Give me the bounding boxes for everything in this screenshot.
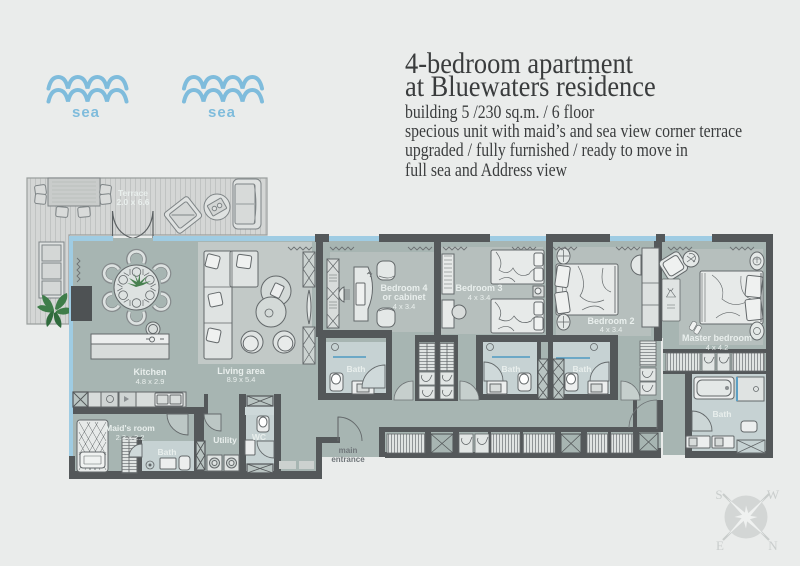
svg-text:or cabinet: or cabinet (382, 292, 425, 302)
svg-text:4 x 3.4: 4 x 3.4 (600, 325, 623, 334)
svg-text:entrance: entrance (331, 455, 365, 464)
svg-text:2.3 x 2.2: 2.3 x 2.2 (116, 433, 145, 442)
svg-text:S: S (715, 487, 722, 502)
svg-text:Maid's room: Maid's room (105, 423, 155, 433)
svg-text:N: N (768, 538, 778, 553)
svg-text:Bath: Bath (502, 364, 521, 374)
svg-text:4 x 4.2: 4 x 4.2 (706, 343, 729, 352)
svg-text:Bath: Bath (713, 409, 732, 419)
svg-text:main: main (339, 446, 358, 455)
svg-text:Utility: Utility (213, 435, 237, 445)
svg-text:4 x 3.4: 4 x 3.4 (468, 293, 491, 302)
svg-text:8.9 x 5.4: 8.9 x 5.4 (227, 375, 256, 384)
svg-text:2.0 x 6.6: 2.0 x 6.6 (116, 197, 149, 207)
svg-text:WC: WC (252, 432, 266, 442)
svg-text:4.8 x 2.9: 4.8 x 2.9 (136, 377, 165, 386)
svg-text:sea: sea (72, 104, 100, 121)
svg-text:Bath: Bath (347, 364, 366, 374)
svg-text:Bath: Bath (573, 364, 592, 374)
svg-text:W: W (767, 487, 780, 502)
svg-text:sea: sea (208, 104, 236, 121)
svg-text:E: E (716, 538, 724, 553)
svg-text:Bath: Bath (158, 447, 177, 457)
svg-text:Kitchen: Kitchen (133, 367, 166, 377)
svg-text:Bedroom 3: Bedroom 3 (455, 283, 502, 293)
svg-text:4 x 3.4: 4 x 3.4 (393, 302, 416, 311)
svg-text:Master bedroom: Master bedroom (682, 333, 752, 343)
